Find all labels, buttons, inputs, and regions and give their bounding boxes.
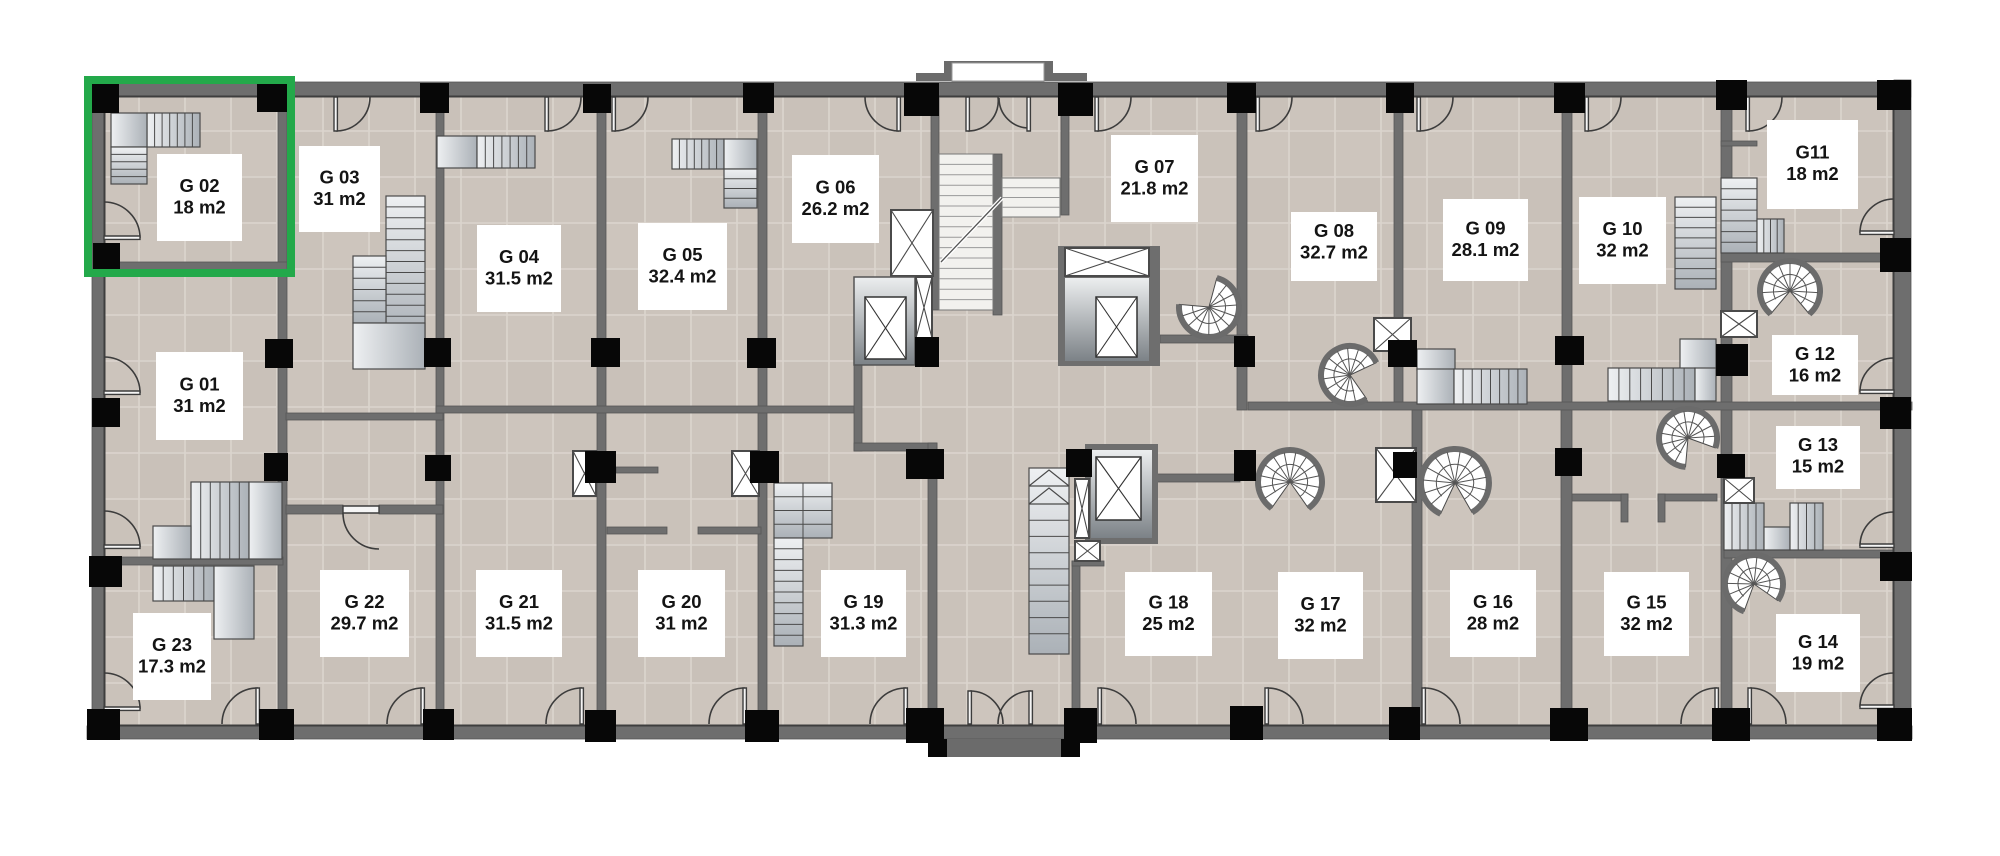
svg-text:26.2 m2: 26.2 m2 xyxy=(802,198,870,219)
svg-text:G 17: G 17 xyxy=(1300,593,1340,614)
svg-text:31.5 m2: 31.5 m2 xyxy=(485,267,553,288)
svg-text:32 m2: 32 m2 xyxy=(1620,613,1672,634)
svg-text:G 01: G 01 xyxy=(179,373,219,394)
svg-text:G 10: G 10 xyxy=(1602,218,1642,239)
svg-text:21.8 m2: 21.8 m2 xyxy=(1121,177,1189,198)
svg-text:G 15: G 15 xyxy=(1626,592,1666,613)
svg-text:G 12: G 12 xyxy=(1795,343,1835,364)
svg-text:31.5 m2: 31.5 m2 xyxy=(485,612,553,633)
svg-text:G11: G11 xyxy=(1796,142,1830,163)
svg-text:31.3 m2: 31.3 m2 xyxy=(830,612,898,633)
svg-text:G 03: G 03 xyxy=(319,166,359,187)
svg-text:G 14: G 14 xyxy=(1798,631,1839,652)
svg-text:18 m2: 18 m2 xyxy=(1786,163,1838,184)
svg-text:G 21: G 21 xyxy=(499,591,539,612)
svg-text:32.4 m2: 32.4 m2 xyxy=(649,265,717,286)
svg-text:31 m2: 31 m2 xyxy=(313,188,365,209)
svg-text:31 m2: 31 m2 xyxy=(655,612,707,633)
svg-text:G 06: G 06 xyxy=(815,176,855,197)
svg-text:G 09: G 09 xyxy=(1465,218,1505,239)
svg-text:28.1 m2: 28.1 m2 xyxy=(1452,239,1520,260)
svg-text:G 08: G 08 xyxy=(1314,220,1354,241)
svg-text:25 m2: 25 m2 xyxy=(1142,613,1194,634)
svg-text:17.3 m2: 17.3 m2 xyxy=(138,655,206,676)
svg-text:G 20: G 20 xyxy=(661,591,701,612)
svg-text:G 22: G 22 xyxy=(344,591,384,612)
svg-text:32.7 m2: 32.7 m2 xyxy=(1300,242,1368,263)
svg-text:31 m2: 31 m2 xyxy=(173,395,225,416)
svg-text:G 07: G 07 xyxy=(1134,156,1174,177)
svg-text:16 m2: 16 m2 xyxy=(1789,365,1841,386)
svg-text:G 02: G 02 xyxy=(179,175,219,196)
svg-text:G 16: G 16 xyxy=(1473,591,1513,612)
svg-text:G 23: G 23 xyxy=(152,634,192,655)
svg-text:G 19: G 19 xyxy=(843,591,883,612)
svg-text:32 m2: 32 m2 xyxy=(1596,239,1648,260)
svg-text:32 m2: 32 m2 xyxy=(1294,614,1346,635)
svg-text:G 13: G 13 xyxy=(1798,434,1838,455)
svg-text:19 m2: 19 m2 xyxy=(1792,652,1844,673)
svg-text:29.7 m2: 29.7 m2 xyxy=(331,612,399,633)
svg-text:28 m2: 28 m2 xyxy=(1467,612,1519,633)
svg-text:G 05: G 05 xyxy=(662,244,702,265)
svg-text:15 m2: 15 m2 xyxy=(1792,456,1844,477)
svg-text:G 18: G 18 xyxy=(1148,592,1188,613)
svg-text:18 m2: 18 m2 xyxy=(173,196,225,217)
svg-text:G 04: G 04 xyxy=(499,246,540,267)
